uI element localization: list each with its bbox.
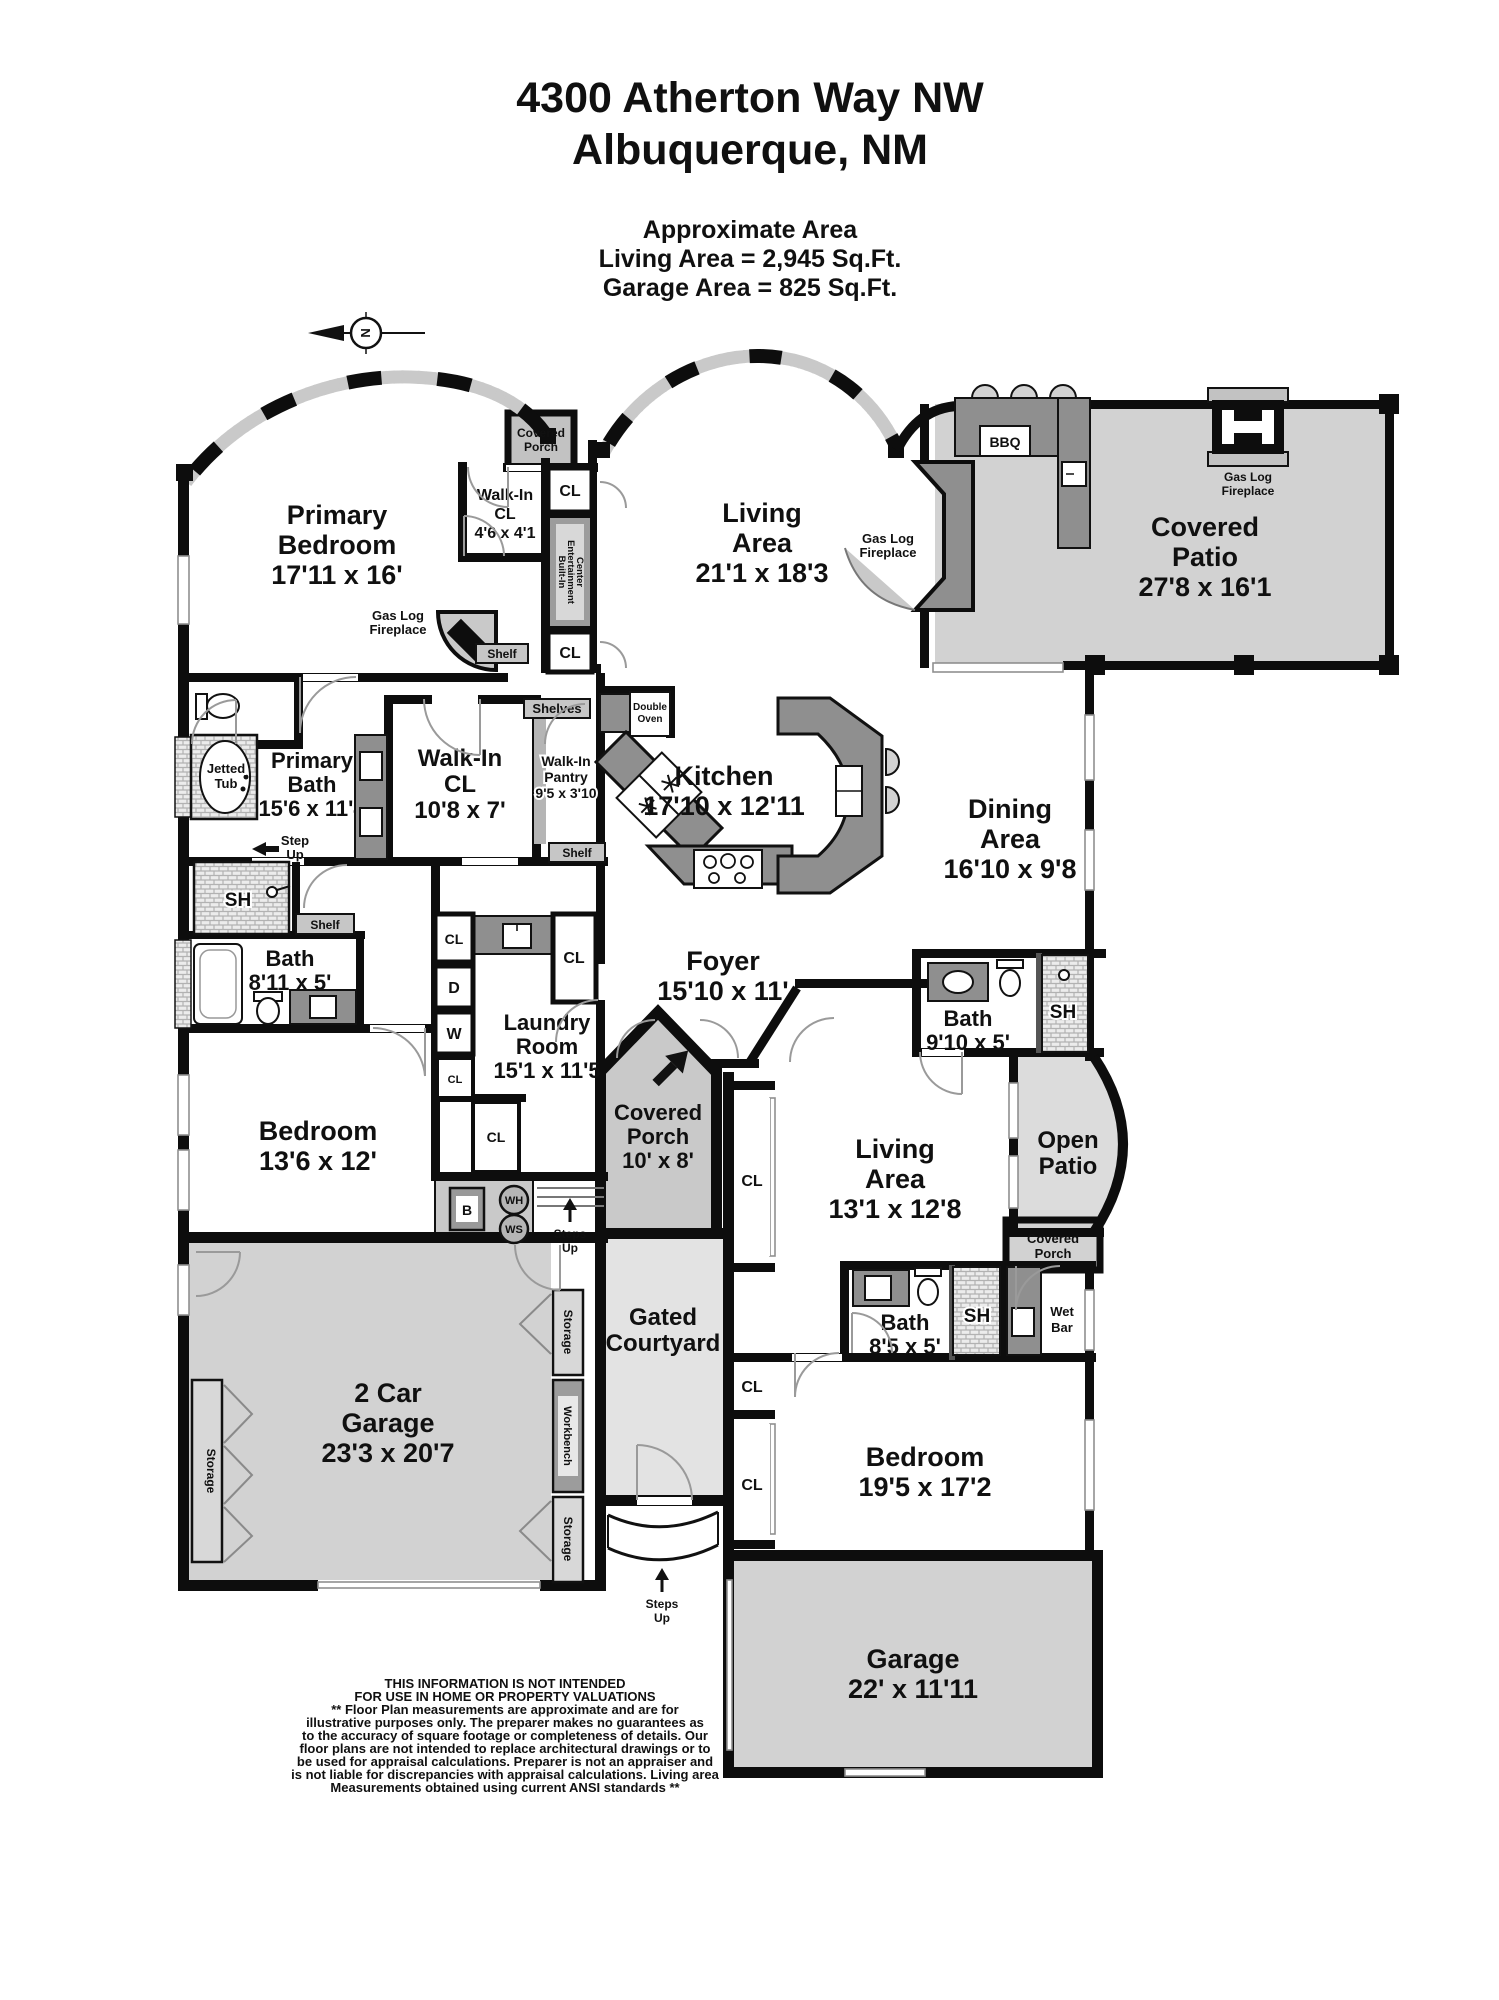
compass-north-label: N <box>358 328 373 337</box>
room-walk-in-pantry: Shelves Walk-In Pantry 9'5 x 3'10 Shelf <box>524 699 605 862</box>
svg-text:CL: CL <box>494 506 516 523</box>
svg-text:Porch: Porch <box>627 1124 689 1149</box>
svg-text:Gas Log: Gas Log <box>372 608 424 623</box>
glass-block-window <box>175 940 191 1028</box>
bath-casita: SH Bath 8'5 x 5' <box>853 1267 1000 1359</box>
svg-text:Area: Area <box>865 1164 926 1194</box>
closet-bottom-label: CL <box>559 645 581 662</box>
svg-text:Area: Area <box>732 528 793 558</box>
svg-text:Bath: Bath <box>881 1310 930 1335</box>
window <box>178 1150 189 1210</box>
closet-label: CL <box>741 1379 763 1396</box>
svg-text:Fireplace: Fireplace <box>369 622 426 637</box>
shelf-pantry-label: Shelf <box>562 846 592 860</box>
svg-text:Room: Room <box>516 1034 578 1059</box>
svg-text:Courtyard: Courtyard <box>606 1330 721 1357</box>
room-primary-bedroom: Primary Bedroom 17'11 x 16' <box>271 500 402 590</box>
svg-text:Storage: Storage <box>204 1449 218 1494</box>
double-vanity <box>355 735 387 859</box>
bath-right: SH Bath 9'10 x 5' <box>926 955 1088 1055</box>
svg-text:Bath: Bath <box>288 772 337 797</box>
room-bedroom-left: Bedroom 13'6 x 12' <box>259 1116 378 1176</box>
svg-text:Wet: Wet <box>1050 1304 1074 1319</box>
svg-text:Walk-In: Walk-In <box>418 745 502 772</box>
bedroom-fireplace-label: Gas Log Fireplace <box>369 608 426 637</box>
svg-text:15'10 x 11': 15'10 x 11' <box>657 976 788 1006</box>
svg-text:Primary: Primary <box>271 748 354 773</box>
svg-text:2 Car: 2 Car <box>354 1378 422 1408</box>
svg-text:Patio: Patio <box>1172 542 1238 572</box>
covered-porch-right-label: Covered Porch <box>1027 1231 1079 1261</box>
gated-courtyard-floor <box>606 1239 723 1495</box>
room-foyer: Foyer 15'10 x 11' <box>657 946 788 1006</box>
svg-text:Steps: Steps <box>554 1227 587 1241</box>
living-area-total: Living Area = 2,945 Sq.Ft. <box>599 245 902 273</box>
svg-text:Bedroom: Bedroom <box>866 1442 985 1472</box>
room-living-area-main: Living Area 21'1 x 18'3 <box>696 498 829 588</box>
compass-icon: N <box>308 312 425 354</box>
svg-text:Storage: Storage <box>561 1517 575 1562</box>
svg-text:13'1 x 12'8: 13'1 x 12'8 <box>829 1194 962 1224</box>
svg-text:Steps: Steps <box>646 1597 679 1611</box>
closet-label: CL <box>445 931 464 947</box>
bay-window-living-area <box>604 356 898 452</box>
svg-text:8'5 x 5': 8'5 x 5' <box>869 1334 941 1359</box>
room-primary-bath: Primary Bath 15'6 x 11'4 <box>258 748 366 821</box>
svg-text:Walk-In: Walk-In <box>477 487 533 504</box>
svg-text:Bath: Bath <box>266 946 315 971</box>
bay-window-primary-bedroom <box>186 377 548 482</box>
room-dining-area: Dining Area 16'10 x 9'8 <box>944 794 1077 884</box>
courtyard-steps: Steps Up <box>608 1512 718 1625</box>
room-walk-in-cl: Walk-In CL 10'8 x 7' <box>414 745 506 824</box>
room-garage-small: Garage 22' x 11'11 <box>848 1644 978 1704</box>
svg-text:Covered: Covered <box>614 1100 702 1125</box>
shower-label: SH <box>964 1306 990 1327</box>
washer-label: W <box>446 1026 462 1043</box>
svg-text:4'6 x 4'1: 4'6 x 4'1 <box>475 525 536 542</box>
patio-fireplace-label: Gas Log Fireplace <box>1222 470 1275 498</box>
built-in-entertainment-center: Built-In Entertainment Center <box>548 516 592 628</box>
window <box>178 1265 189 1315</box>
svg-text:Patio: Patio <box>1039 1153 1098 1180</box>
address-line1: 4300 Atherton Way NW <box>516 74 984 122</box>
svg-text:CL: CL <box>444 771 476 798</box>
shower-label: SH <box>1050 1002 1076 1023</box>
svg-text:Garage: Garage <box>341 1408 434 1438</box>
closet-top-label: CL <box>559 483 581 500</box>
closet-label: CL <box>741 1477 763 1494</box>
arrow-up-icon <box>563 1198 577 1210</box>
living-fireplace-label: Gas Log Fireplace <box>859 531 916 560</box>
svg-text:Laundry: Laundry <box>504 1010 592 1035</box>
svg-text:Bedroom: Bedroom <box>278 530 397 560</box>
dryer-label: D <box>448 980 460 997</box>
glass-block-window <box>175 737 191 817</box>
closet-label: CL <box>741 1173 763 1190</box>
disclaimer: THIS INFORMATION IS NOT INTENDED FOR USE… <box>291 1676 719 1795</box>
svg-text:Measurements obtained using cu: Measurements obtained using current ANSI… <box>330 1780 680 1795</box>
floor-plan-canvas: 4300 Atherton Way NW Albuquerque, NM App… <box>0 0 1499 2000</box>
shelf-chip-bath: Shelf <box>296 914 354 934</box>
water-heater-label: WH <box>505 1195 523 1207</box>
patio-fireplace-icon <box>1208 388 1288 466</box>
svg-text:Primary: Primary <box>287 500 388 530</box>
svg-text:Gas Log: Gas Log <box>862 531 914 546</box>
svg-text:Jetted: Jetted <box>207 761 245 776</box>
svg-text:Up: Up <box>654 1611 670 1625</box>
svg-text:9'5 x 3'10: 9'5 x 3'10 <box>535 785 596 801</box>
svg-text:19'5 x 17'2: 19'5 x 17'2 <box>859 1472 992 1502</box>
svg-text:Center: Center <box>574 557 585 587</box>
svg-text:15'1 x 11'5: 15'1 x 11'5 <box>493 1058 600 1083</box>
svg-text:23'3 x 20'7: 23'3 x 20'7 <box>322 1438 455 1468</box>
svg-text:Bedroom: Bedroom <box>259 1116 378 1146</box>
svg-text:Covered: Covered <box>1027 1231 1079 1246</box>
svg-text:27'8 x 16'1: 27'8 x 16'1 <box>1139 572 1272 602</box>
svg-text:21'1 x 18'3: 21'1 x 18'3 <box>696 558 829 588</box>
double-oven-label: Double <box>633 702 667 713</box>
svg-text:Bath: Bath <box>944 1006 993 1031</box>
svg-text:Up: Up <box>562 1241 578 1255</box>
water-softener-label: WS <box>505 1224 523 1236</box>
area-title: Approximate Area <box>643 216 859 244</box>
room-bath-middle: Bath 8'11 x 5' <box>249 946 332 995</box>
svg-text:Covered: Covered <box>1151 512 1259 542</box>
svg-text:15'6 x 11'4: 15'6 x 11'4 <box>258 796 366 821</box>
svg-text:Tub: Tub <box>215 776 238 791</box>
svg-text:Open: Open <box>1037 1127 1098 1154</box>
svg-text:Shelf: Shelf <box>310 918 340 932</box>
shelf-chip-fireplace: Shelf <box>476 644 528 663</box>
room-living-casita: Living Area 13'1 x 12'8 <box>829 1134 962 1224</box>
window <box>178 556 189 624</box>
bbq-label: BBQ <box>989 434 1020 450</box>
arrow-up-icon <box>655 1568 669 1580</box>
svg-text:10' x 8': 10' x 8' <box>622 1148 694 1173</box>
svg-text:Fireplace: Fireplace <box>859 545 916 560</box>
svg-text:Storage: Storage <box>561 1310 575 1355</box>
svg-text:17'10 x 12'11: 17'10 x 12'11 <box>643 791 805 821</box>
svg-text:Walk-In: Walk-In <box>541 753 590 769</box>
double-oven-label2: Oven <box>637 714 662 725</box>
svg-text:Up: Up <box>286 847 303 862</box>
svg-text:Shelf: Shelf <box>487 647 517 661</box>
cooktop-icon <box>694 850 762 888</box>
room-bedroom-casita: Bedroom 19'5 x 17'2 <box>859 1442 992 1502</box>
primary-shower: SH <box>194 862 290 934</box>
room-open-patio: Open Patio <box>1037 1127 1098 1180</box>
svg-text:Fireplace: Fireplace <box>1222 484 1275 498</box>
stool-icon <box>886 787 899 813</box>
svg-text:17'11 x 16': 17'11 x 16' <box>271 560 402 590</box>
svg-text:Step: Step <box>281 833 309 848</box>
room-walk-in-cl-small: Walk-In CL 4'6 x 4'1 <box>475 487 536 542</box>
svg-text:Area: Area <box>980 824 1041 854</box>
arrow-left-icon <box>252 842 266 856</box>
svg-text:Foyer: Foyer <box>686 946 760 976</box>
svg-text:10'8 x 7': 10'8 x 7' <box>414 797 506 824</box>
shelves-label: Shelves <box>532 701 581 716</box>
address-line2: Albuquerque, NM <box>572 126 928 174</box>
svg-text:Living: Living <box>855 1134 935 1164</box>
svg-text:Porch: Porch <box>524 440 558 454</box>
svg-text:Workbench: Workbench <box>561 1406 573 1466</box>
header: 4300 Atherton Way NW Albuquerque, NM App… <box>516 74 984 302</box>
svg-text:Kitchen: Kitchen <box>674 761 773 791</box>
svg-text:16'10 x 9'8: 16'10 x 9'8 <box>944 854 1077 884</box>
garage-workbench: Workbench <box>553 1380 583 1492</box>
closet-label: CL <box>448 1074 463 1086</box>
room-laundry: Laundry Room 15'1 x 11'5 <box>493 1010 600 1083</box>
closet-label: CL <box>487 1129 506 1145</box>
svg-text:Porch: Porch <box>1035 1246 1072 1261</box>
svg-text:Dining: Dining <box>968 794 1052 824</box>
svg-text:Bar: Bar <box>1051 1320 1073 1335</box>
svg-text:Covered: Covered <box>517 426 565 440</box>
svg-text:Pantry: Pantry <box>544 769 588 785</box>
floor-plan-page: 4300 Atherton Way NW Albuquerque, NM App… <box>0 0 1499 2000</box>
svg-text:Garage: Garage <box>866 1644 959 1674</box>
svg-text:Gas Log: Gas Log <box>1224 470 1272 484</box>
stool-icon <box>1050 385 1076 398</box>
stool-icon <box>1011 385 1037 398</box>
closet-label: CL <box>563 950 585 967</box>
window <box>178 1075 189 1135</box>
svg-text:22' x 11'11: 22' x 11'11 <box>848 1674 978 1704</box>
shower-label: SH <box>225 890 251 911</box>
svg-text:13'6 x 12': 13'6 x 12' <box>259 1146 377 1176</box>
covered-porch-top-label: Covered Porch <box>517 426 565 454</box>
svg-text:9'10 x 5': 9'10 x 5' <box>926 1030 1010 1055</box>
svg-text:Gated: Gated <box>629 1304 697 1331</box>
stool-icon <box>972 385 998 398</box>
stool-icon <box>886 749 899 775</box>
wet-bar: Wet Bar <box>1007 1267 1074 1355</box>
boiler-label: B <box>462 1202 472 1218</box>
garage-area-total: Garage Area = 825 Sq.Ft. <box>603 274 897 302</box>
svg-text:Living: Living <box>722 498 802 528</box>
